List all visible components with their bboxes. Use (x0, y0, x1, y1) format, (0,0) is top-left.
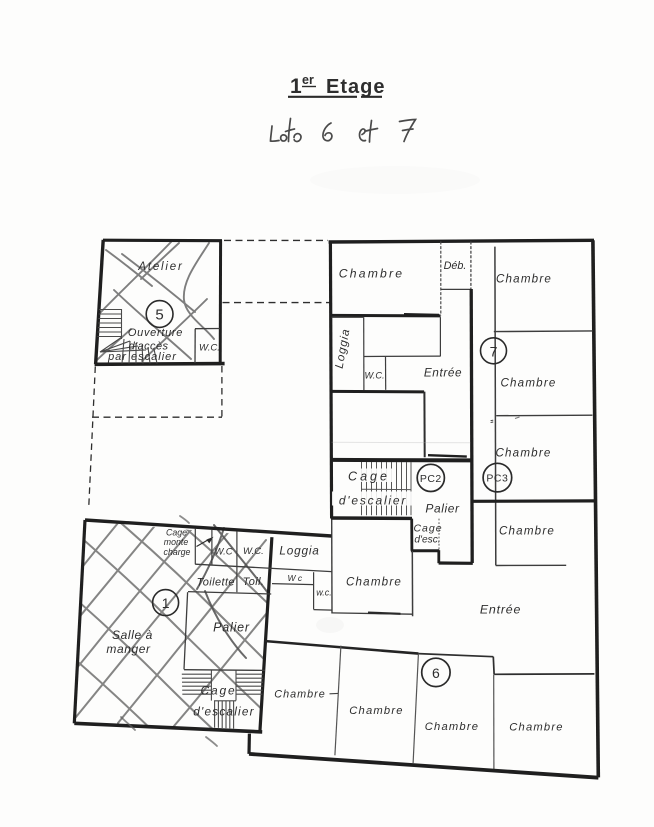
svg-text:Salle à: Salle à (112, 628, 153, 642)
svg-text:Chambre: Chambre (425, 721, 479, 733)
svg-text:Toil.: Toil. (243, 576, 265, 588)
svg-text:W.C.: W.C. (243, 546, 264, 557)
svg-text:Chambre: Chambre (509, 721, 563, 733)
svg-text:PC3: PC3 (486, 473, 508, 485)
svg-text:5: 5 (155, 307, 163, 324)
svg-text:Chambre: Chambre (500, 377, 556, 390)
svg-text:Atelier: Atelier (137, 261, 183, 273)
svg-text:d'esc.: d'esc. (414, 535, 440, 546)
svg-text:Déb.: Déb. (444, 260, 467, 272)
svg-text:er: er (302, 73, 314, 87)
svg-text:Chambre: Chambre (339, 267, 405, 281)
svg-text:Ouverture: Ouverture (128, 327, 183, 339)
svg-text:Toilette: Toilette (197, 577, 235, 589)
svg-text:W.C.: W.C. (199, 343, 220, 354)
svg-text:1: 1 (290, 75, 302, 98)
svg-text:7: 7 (490, 343, 498, 359)
svg-text:Cage: Cage (348, 470, 390, 484)
svg-text:6: 6 (432, 665, 440, 681)
svg-text:W.C: W.C (215, 547, 233, 558)
svg-text:Entrée: Entrée (480, 603, 521, 617)
svg-text:d'escalier: d'escalier (193, 705, 254, 719)
svg-text:Palier: Palier (213, 621, 250, 635)
svg-text:Chambre: Chambre (495, 447, 551, 460)
svg-text:manger: manger (106, 642, 151, 656)
svg-text:1: 1 (162, 595, 170, 611)
svg-text:Cage: Cage (413, 523, 442, 535)
svg-text:par escalier: par escalier (107, 351, 177, 363)
svg-text:W c: W c (287, 573, 302, 583)
svg-text:w.c.: w.c. (316, 588, 332, 598)
svg-text:Palier: Palier (425, 502, 460, 516)
svg-text:Entrée: Entrée (424, 366, 462, 380)
svg-text:Cage: Cage (201, 684, 237, 698)
svg-text:W.C.: W.C. (364, 371, 384, 381)
svg-text:Chambre: Chambre (496, 273, 552, 286)
svg-text:d'escalier: d'escalier (339, 494, 407, 508)
svg-text:Cage: Cage (166, 528, 187, 538)
svg-text:Chambre: Chambre (346, 576, 402, 589)
svg-text:monte: monte (164, 537, 189, 547)
svg-text:Chambre: Chambre (499, 525, 555, 538)
svg-text:Loggia: Loggia (279, 544, 319, 558)
svg-text:Chambre: Chambre (349, 705, 403, 717)
svg-text:Etage: Etage (326, 76, 385, 98)
svg-text:PC2: PC2 (420, 473, 442, 485)
svg-text:Chambre: Chambre (274, 689, 325, 701)
svg-text:charge: charge (164, 547, 191, 557)
